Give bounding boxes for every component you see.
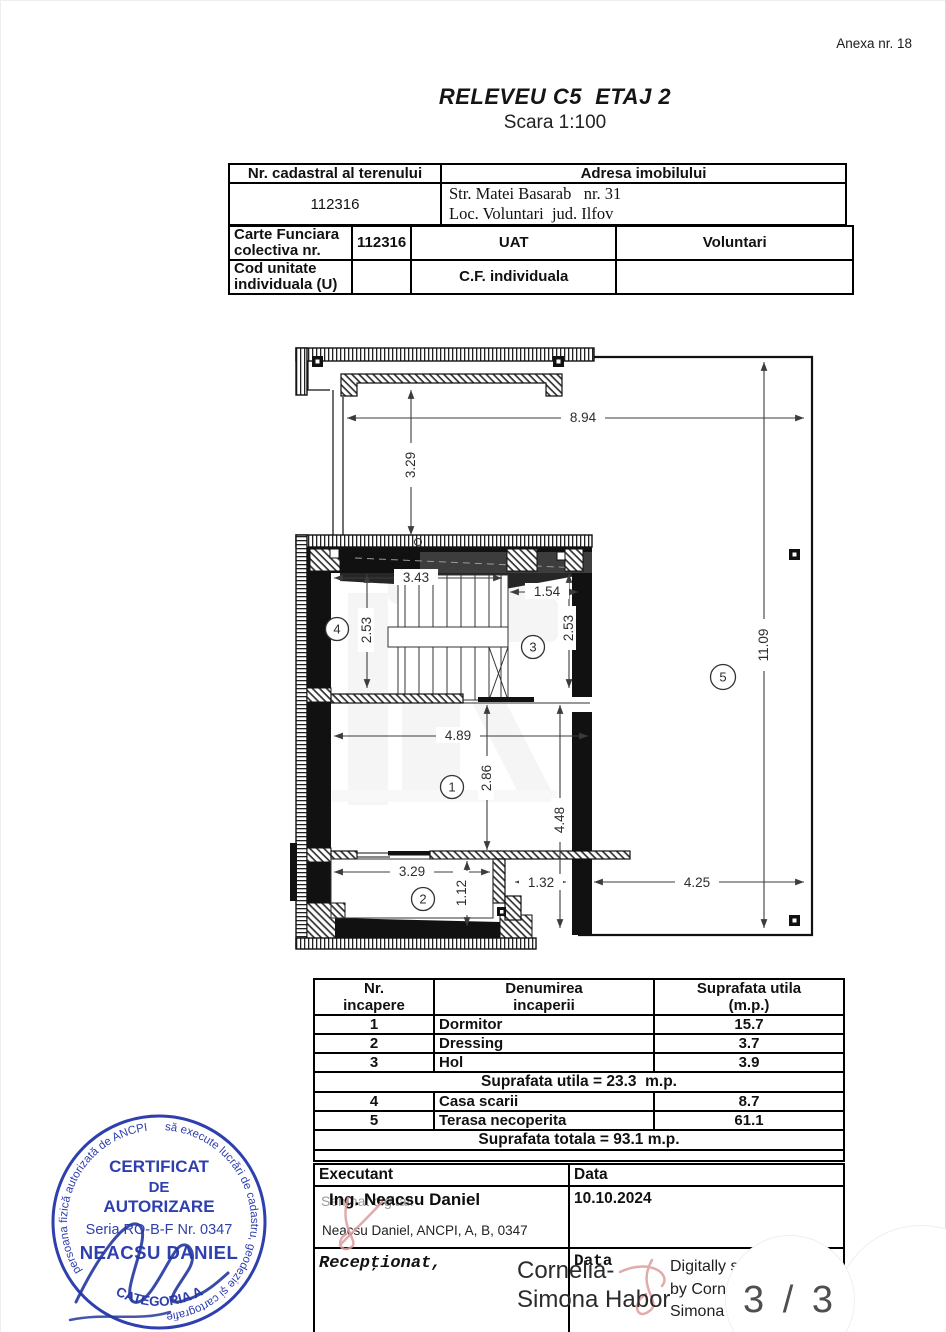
table-row: 5 Terasa necoperita 61.1 (314, 1111, 844, 1130)
svg-text:1.12: 1.12 (454, 880, 469, 906)
header-cadastral: Nr. cadastral al terenului (229, 164, 441, 183)
svg-text:4.25: 4.25 (684, 875, 710, 890)
svg-text:3.29: 3.29 (403, 452, 418, 478)
spacer-row (314, 1150, 844, 1161)
room-marker-1: 1 (441, 776, 464, 799)
table-row: 3 Hol 3.9 (314, 1053, 844, 1072)
room-name: Dormitor (434, 1015, 654, 1034)
svg-text:2: 2 (419, 892, 426, 907)
total-row: Suprafata totala = 93.1 m.p. (314, 1130, 844, 1150)
table-row: 4 Casa scarii 8.7 (314, 1092, 844, 1111)
stamp-line2: DE (149, 1179, 170, 1196)
svg-text:4.89: 4.89 (445, 728, 471, 743)
stamp-line3: AUTORIZARE (103, 1197, 214, 1216)
room-name: Dressing (434, 1034, 654, 1053)
stamp-line1: CERTIFICAT (109, 1157, 209, 1176)
areas-header-name: Denumireaincaperii (434, 979, 654, 1015)
authorization-stamp: persoana fizică autorizată de ANCPI să e… (46, 1106, 272, 1332)
column-markers (789, 549, 800, 926)
cf-individual-label: C.F. individuala (411, 260, 616, 294)
room-name: Terasa necoperita (434, 1111, 654, 1130)
room-nr: 1 (314, 1015, 434, 1034)
room-marker-3: 3 (522, 636, 545, 659)
room-nr: 3 (314, 1053, 434, 1072)
document-page: Anexa nr. 18 RELEVEU C5 ETAJ 2 Scara 1:1… (0, 0, 946, 1332)
areas-table: Nr.incapere Denumireaincaperii Suprafata… (313, 978, 845, 1162)
svg-text:5: 5 (719, 670, 726, 685)
svg-text:2.53: 2.53 (359, 617, 374, 643)
room-area: 15.7 (654, 1015, 844, 1034)
svg-text:2.86: 2.86 (479, 765, 494, 791)
digital-signer-name: Cornelia- Simona Habor (517, 1256, 670, 1314)
svg-text:4.48: 4.48 (552, 807, 567, 833)
room-marker-5: 5 (711, 665, 736, 690)
room-nr: 4 (314, 1092, 434, 1111)
signer-name-line1: Cornelia- (517, 1256, 670, 1285)
svg-text:1: 1 (448, 780, 455, 795)
executant-credentials: Neacsu Daniel, ANCPI, A, B, 0347 (322, 1223, 528, 1238)
subtotal-row: Suprafata utila = 23.3 m.p. (314, 1072, 844, 1092)
cadastral-number: 112316 (229, 183, 441, 225)
address-line2: Loc. Voluntari jud. Ilfov (449, 204, 841, 224)
terrace-outline (578, 357, 812, 935)
stamp-line4: Seria RO-B-F Nr. 0347 (86, 1222, 233, 1238)
table-row: 1 Dormitor 15.7 (314, 1015, 844, 1034)
room-nr: 5 (314, 1111, 434, 1130)
executant-signature-cell: Semnat digital: Ing. Neacsu Daniel Neacs… (314, 1186, 569, 1248)
room-area: 8.7 (654, 1092, 844, 1111)
property-address: Str. Matei Basarab nr. 31 Loc. Voluntari… (441, 183, 846, 225)
uat-label: UAT (411, 226, 616, 260)
unit-code-value (352, 260, 411, 294)
uat-value: Voluntari (616, 226, 853, 260)
parapet-walls (296, 348, 594, 535)
table-row: 2 Dressing 3.7 (314, 1034, 844, 1053)
room-marker-2: 2 (412, 888, 435, 911)
svg-text:3.43: 3.43 (403, 570, 429, 585)
room-nr: 2 (314, 1034, 434, 1053)
areas-header-area: Suprafata utila(m.p.) (654, 979, 844, 1015)
land-registry-table: Carte Funciara colectiva nr. 112316 UAT … (228, 225, 854, 295)
date-label: Data (569, 1164, 844, 1186)
annex-number: Anexa nr. 18 (836, 36, 912, 51)
svg-text:1.54: 1.54 (534, 584, 561, 599)
page-title: RELEVEU C5 ETAJ 2 (164, 84, 946, 110)
areas-header-nr: Nr.incapere (314, 979, 434, 1015)
svg-text:2.53: 2.53 (561, 615, 576, 641)
room-area: 3.9 (654, 1053, 844, 1072)
executant-name: Ing. Neacsu Daniel (329, 1190, 480, 1210)
address-line1: Str. Matei Basarab nr. 31 (449, 184, 841, 204)
svg-text:3: 3 (529, 640, 536, 655)
svg-text:11.09: 11.09 (756, 629, 771, 662)
svg-text:1.32: 1.32 (528, 875, 554, 890)
cf-individual-value (616, 260, 853, 294)
signer-name-line2: Simona Habor (517, 1285, 670, 1314)
property-table: Nr. cadastral al terenului Adresa imobil… (228, 163, 847, 226)
svg-text:4: 4 (333, 622, 340, 637)
executant-label: Executant (314, 1164, 569, 1186)
unit-code-label: Cod unitate individuala (U) (229, 260, 352, 294)
header-address: Adresa imobilului (441, 164, 846, 183)
svg-text:3.29: 3.29 (399, 864, 425, 879)
room-name: Hol (434, 1053, 654, 1072)
room-name: Casa scarii (434, 1092, 654, 1111)
room-marker-4: 4 (326, 618, 349, 641)
page-indicator-text: 3 / 3 (743, 1279, 837, 1322)
cf-label: Carte Funciara colectiva nr. (229, 226, 352, 260)
page-indicator-background (836, 1226, 946, 1332)
room-area: 3.7 (654, 1034, 844, 1053)
cf-number: 112316 (352, 226, 411, 260)
floor-plan-drawing: 8.94 3.29 3.43 1.54 2.53 2.53 4.89 2.86 … (290, 340, 820, 958)
svg-text:8.94: 8.94 (570, 410, 597, 425)
room-area: 61.1 (654, 1111, 844, 1130)
scale-subtitle: Scara 1:100 (164, 112, 946, 134)
